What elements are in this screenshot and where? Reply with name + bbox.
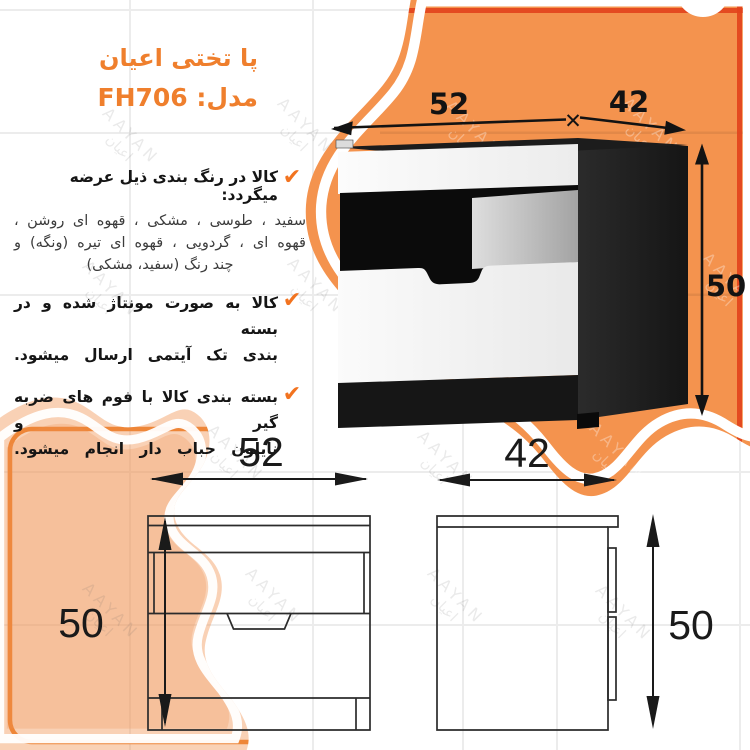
bottom-drawer-edge: [608, 617, 616, 700]
infographic-page: AAYANاعیانAAYANاعیانAAYANاعیانAAYANاعیان…: [0, 0, 750, 750]
arrowhead-down-icon: [647, 696, 660, 729]
arrowhead-up-icon: [159, 517, 172, 550]
arrowhead-left-icon: [437, 474, 470, 487]
arrowhead-right-icon: [335, 473, 368, 486]
arrowhead-left-icon: [150, 473, 183, 486]
arrowhead-down-icon: [159, 694, 172, 727]
side-elevation-drawing: [437, 516, 618, 730]
top-drawer-edge: [608, 548, 616, 612]
arrowhead-up-icon: [647, 514, 660, 547]
front-elevation-drawing: [148, 516, 370, 730]
front-elevation-dimensions: [150, 473, 368, 728]
side-depth-label: 42: [504, 430, 550, 476]
front-height-label: 50: [58, 600, 104, 646]
side-height-label: 50: [668, 602, 714, 648]
technical-drawings: 52 50 42 50: [0, 0, 750, 750]
arrowhead-right-icon: [584, 474, 617, 487]
front-width-label: 52: [238, 429, 284, 475]
drawer-handle-notch: [227, 614, 291, 630]
side-elevation-dimensions: [437, 474, 660, 730]
